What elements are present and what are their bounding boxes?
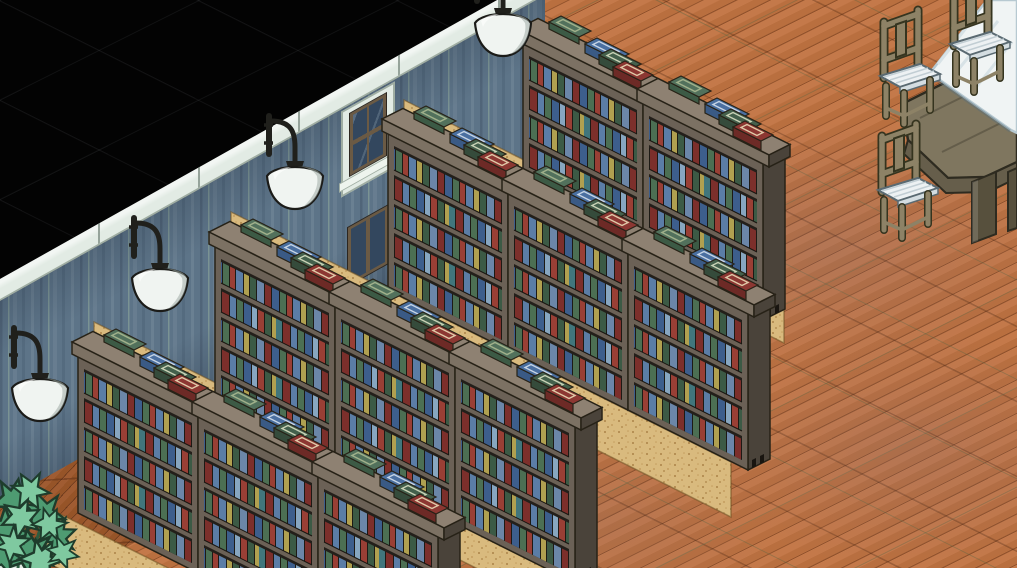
- ivy-plant[interactable]: [0, 466, 82, 568]
- game-viewport[interactable]: [0, 0, 1017, 568]
- wall-lamp[interactable]: [129, 218, 188, 311]
- wall-lamp[interactable]: [472, 0, 531, 56]
- scene-objects: [0, 0, 1017, 568]
- wall-lamp[interactable]: [264, 116, 323, 209]
- wall-lamp[interactable]: [9, 328, 68, 421]
